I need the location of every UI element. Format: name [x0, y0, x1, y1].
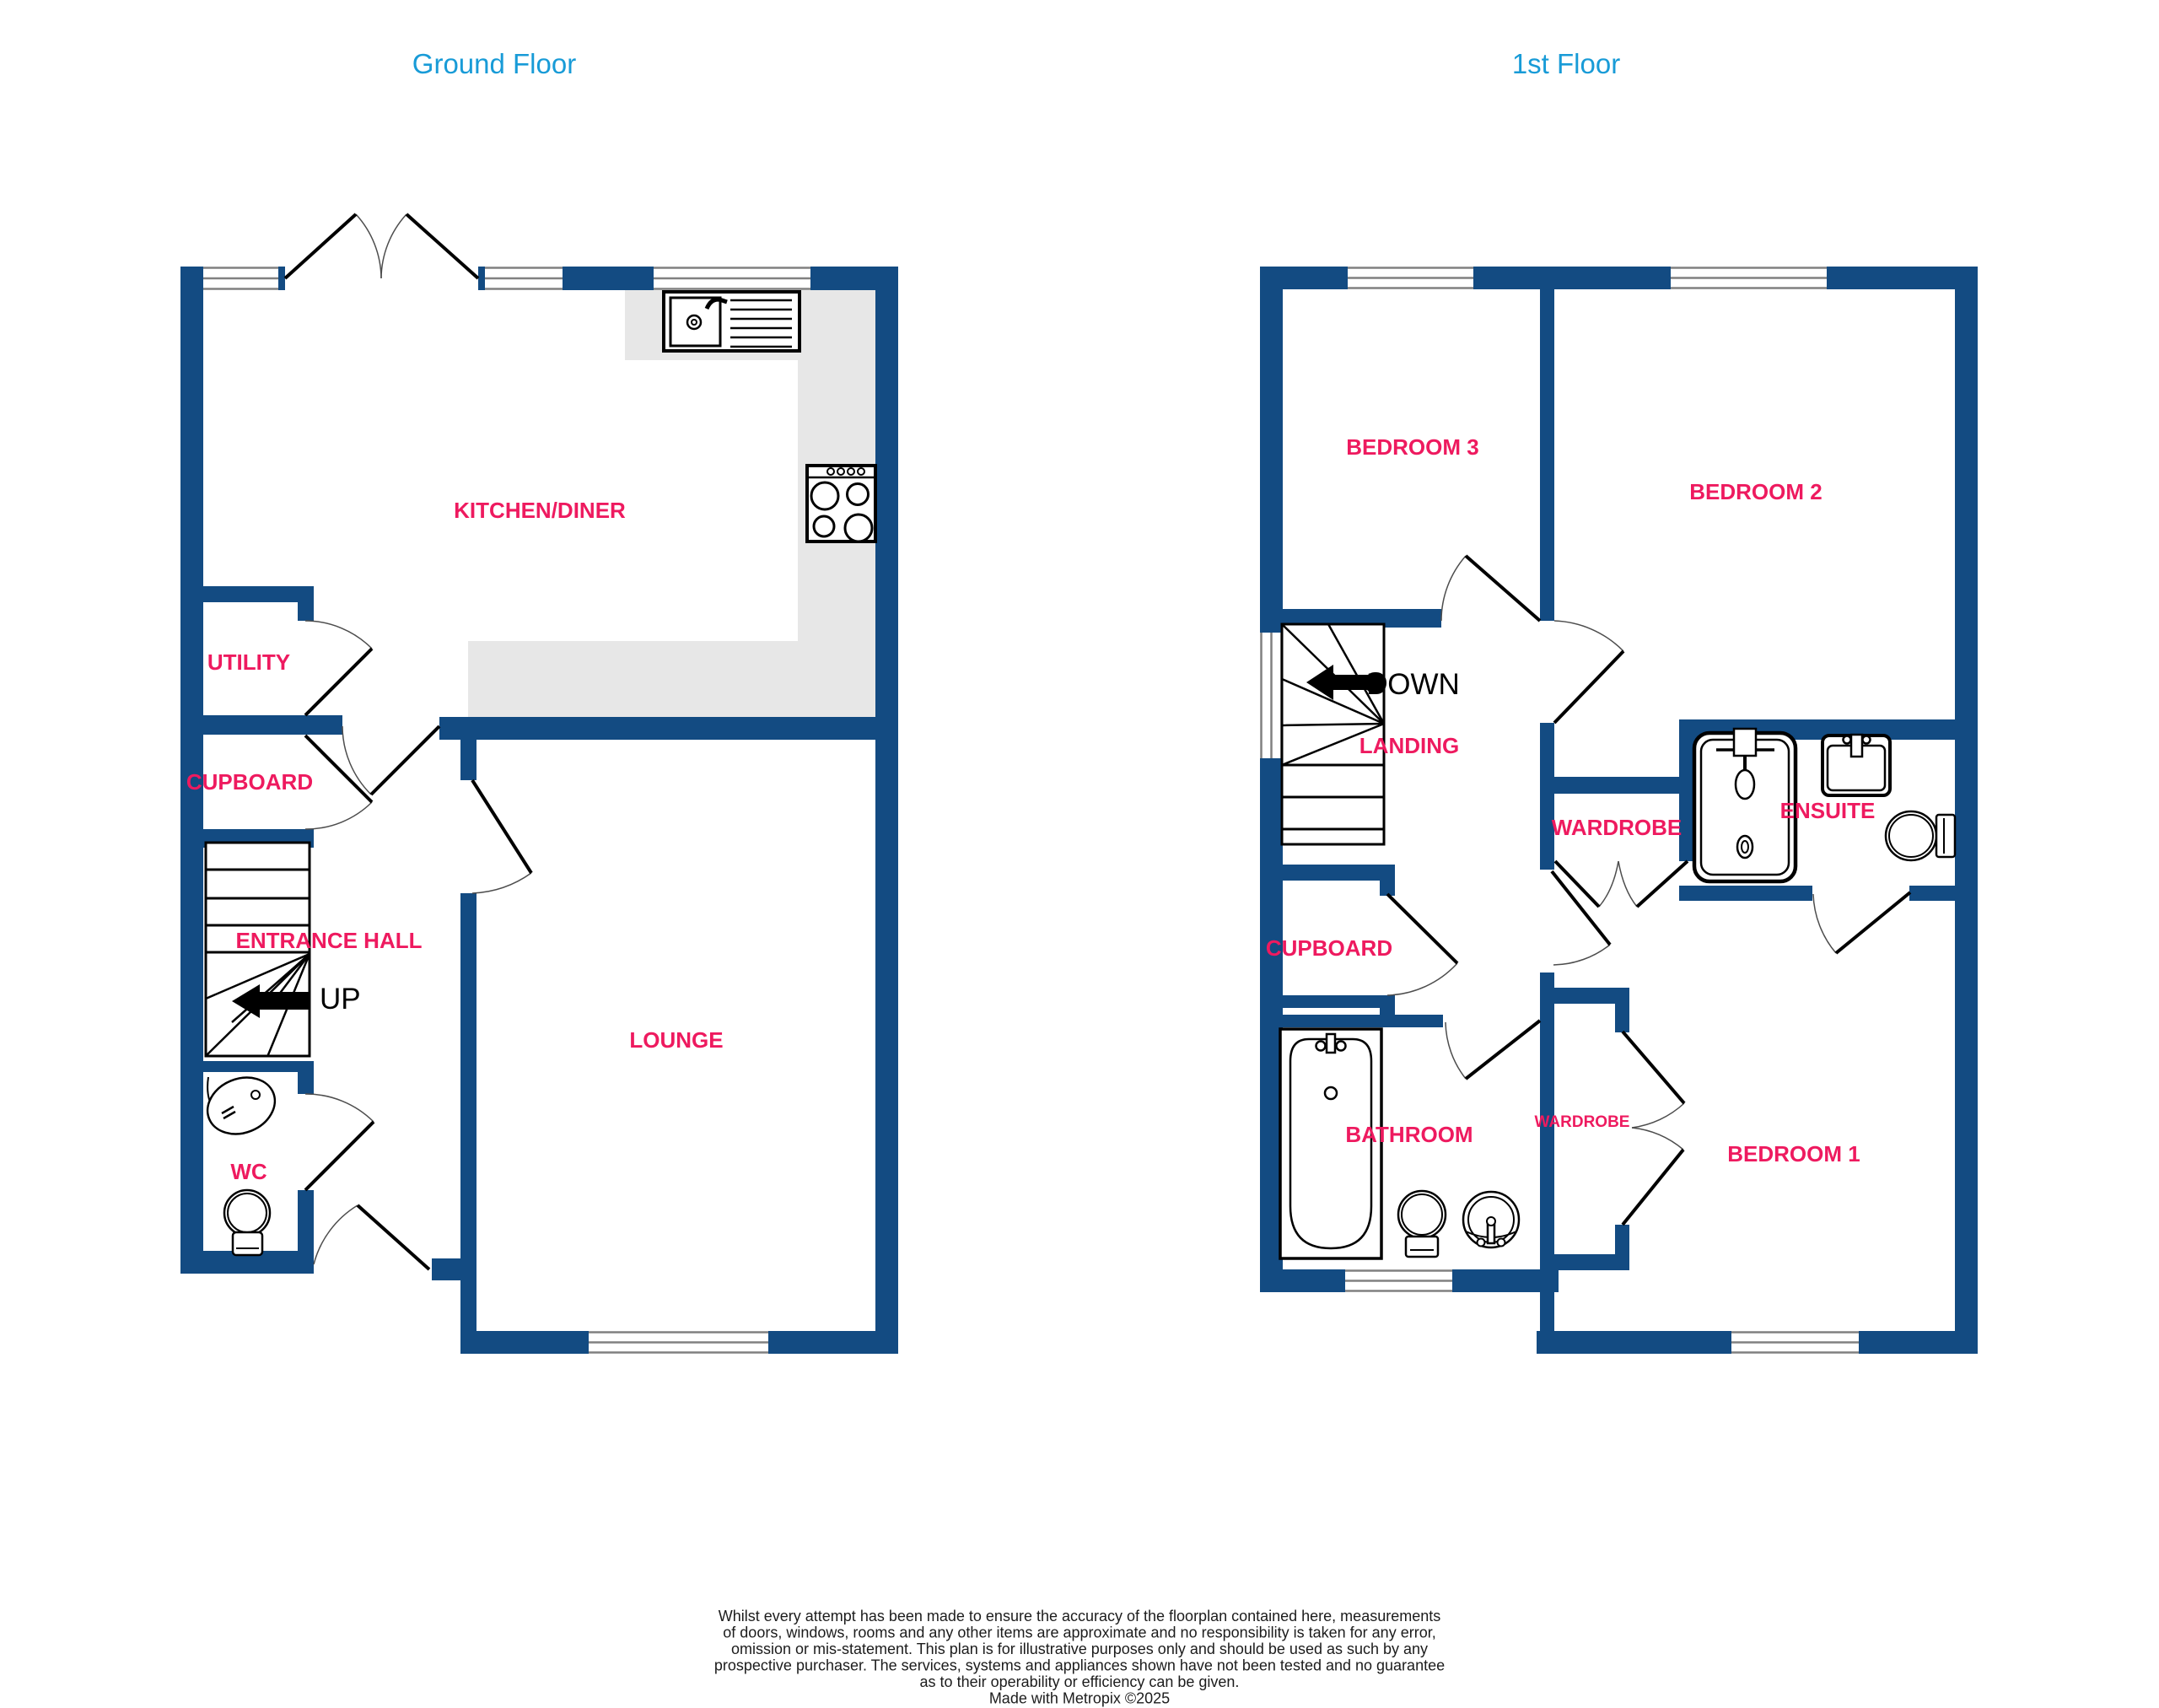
svg-text:omission or mis-statement. Thi: omission or mis-statement. This plan is …	[731, 1641, 1428, 1657]
svg-text:BATHROOM: BATHROOM	[1345, 1122, 1473, 1147]
svg-text:CUPBOARD: CUPBOARD	[1266, 935, 1392, 961]
svg-text:ENSUITE: ENSUITE	[1780, 798, 1876, 823]
svg-text:of doors, windows, rooms and a: of doors, windows, rooms and any other i…	[723, 1624, 1435, 1641]
svg-text:WARDROBE: WARDROBE	[1535, 1113, 1630, 1131]
svg-text:prospective purchaser. The ser: prospective purchaser. The services, sys…	[714, 1657, 1445, 1674]
svg-text:WC: WC	[230, 1159, 267, 1184]
svg-text:as to their operability or eff: as to their operability or efficiency ca…	[920, 1673, 1240, 1690]
svg-text:ENTRANCE HALL: ENTRANCE HALL	[236, 928, 423, 953]
svg-text:LANDING: LANDING	[1359, 733, 1459, 758]
svg-text:UP: UP	[320, 983, 361, 1016]
svg-text:Ground Floor: Ground Floor	[412, 48, 576, 79]
svg-text:WARDROBE: WARDROBE	[1552, 815, 1683, 840]
svg-text:KITCHEN/DINER: KITCHEN/DINER	[454, 498, 626, 523]
svg-text:1st Floor: 1st Floor	[1512, 48, 1620, 79]
svg-text:BEDROOM 2: BEDROOM 2	[1689, 479, 1822, 504]
svg-text:UTILITY: UTILITY	[207, 649, 290, 675]
svg-text:Made with Metropix ©2025: Made with Metropix ©2025	[989, 1690, 1170, 1707]
svg-text:Whilst every attempt has been: Whilst every attempt has been made to en…	[719, 1608, 1440, 1624]
svg-text:BEDROOM 3: BEDROOM 3	[1346, 434, 1478, 460]
svg-text:LOUNGE: LOUNGE	[629, 1027, 723, 1053]
svg-text:BEDROOM 1: BEDROOM 1	[1727, 1141, 1860, 1167]
svg-text:CUPBOARD: CUPBOARD	[186, 769, 313, 795]
